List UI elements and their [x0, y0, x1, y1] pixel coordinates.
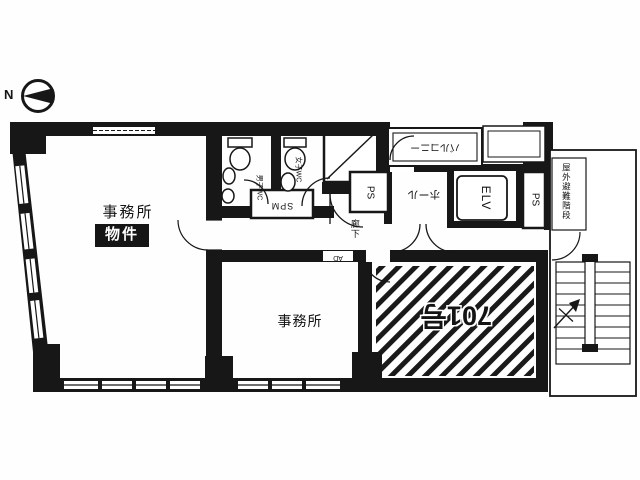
wc-right-label: 女子WC	[291, 153, 302, 187]
unit-701-right-wall	[536, 250, 548, 378]
air-duct-label: AD	[326, 251, 350, 261]
partition-middle-701	[358, 262, 372, 378]
hall-door-right-arc	[426, 224, 454, 252]
hall-door-left-arc	[392, 224, 420, 252]
elevator-label: ELV	[478, 178, 492, 218]
floor-plan-page: N 事務所 物件 事務所 701号 ホール バルコニー ELV PS PS SP…	[0, 0, 640, 480]
ps-left-label: PS	[363, 178, 376, 208]
north-label: N	[4, 88, 20, 102]
ps-right-label: PS	[528, 185, 541, 215]
left-office-corridor-opening	[178, 220, 222, 250]
property-badge: 物件	[95, 224, 149, 247]
toilet-tank-left	[228, 138, 252, 147]
corridor-bottom-wall-right	[390, 250, 548, 262]
ps-small-label: SPM	[262, 198, 302, 210]
urinal-1	[223, 168, 235, 184]
hall-label: ホール	[398, 188, 450, 200]
stairwell-label: 屋外避難階段	[561, 163, 570, 227]
top-wall-window	[93, 127, 155, 134]
stair-center-rail	[585, 261, 595, 345]
wc-left-label: 男子WC	[252, 171, 263, 205]
unit-701-label: 701号	[398, 300, 514, 330]
toilet-bowl-left	[230, 148, 250, 170]
corridor-label: 廊下	[349, 219, 359, 247]
urinal-2	[222, 189, 234, 203]
upper-right-ledge	[483, 126, 545, 162]
left-office-label: 事務所	[96, 205, 160, 222]
partition-left-lower	[206, 250, 222, 378]
north-compass	[23, 81, 54, 112]
balcony-label: バルコニー	[398, 141, 472, 152]
toilet-tank-right	[284, 138, 306, 147]
stair-rail-cap-top	[582, 254, 598, 262]
middle-office-label: 事務所	[268, 314, 332, 329]
compass-needle	[23, 89, 52, 104]
stair-rail-cap-bottom	[582, 344, 598, 352]
